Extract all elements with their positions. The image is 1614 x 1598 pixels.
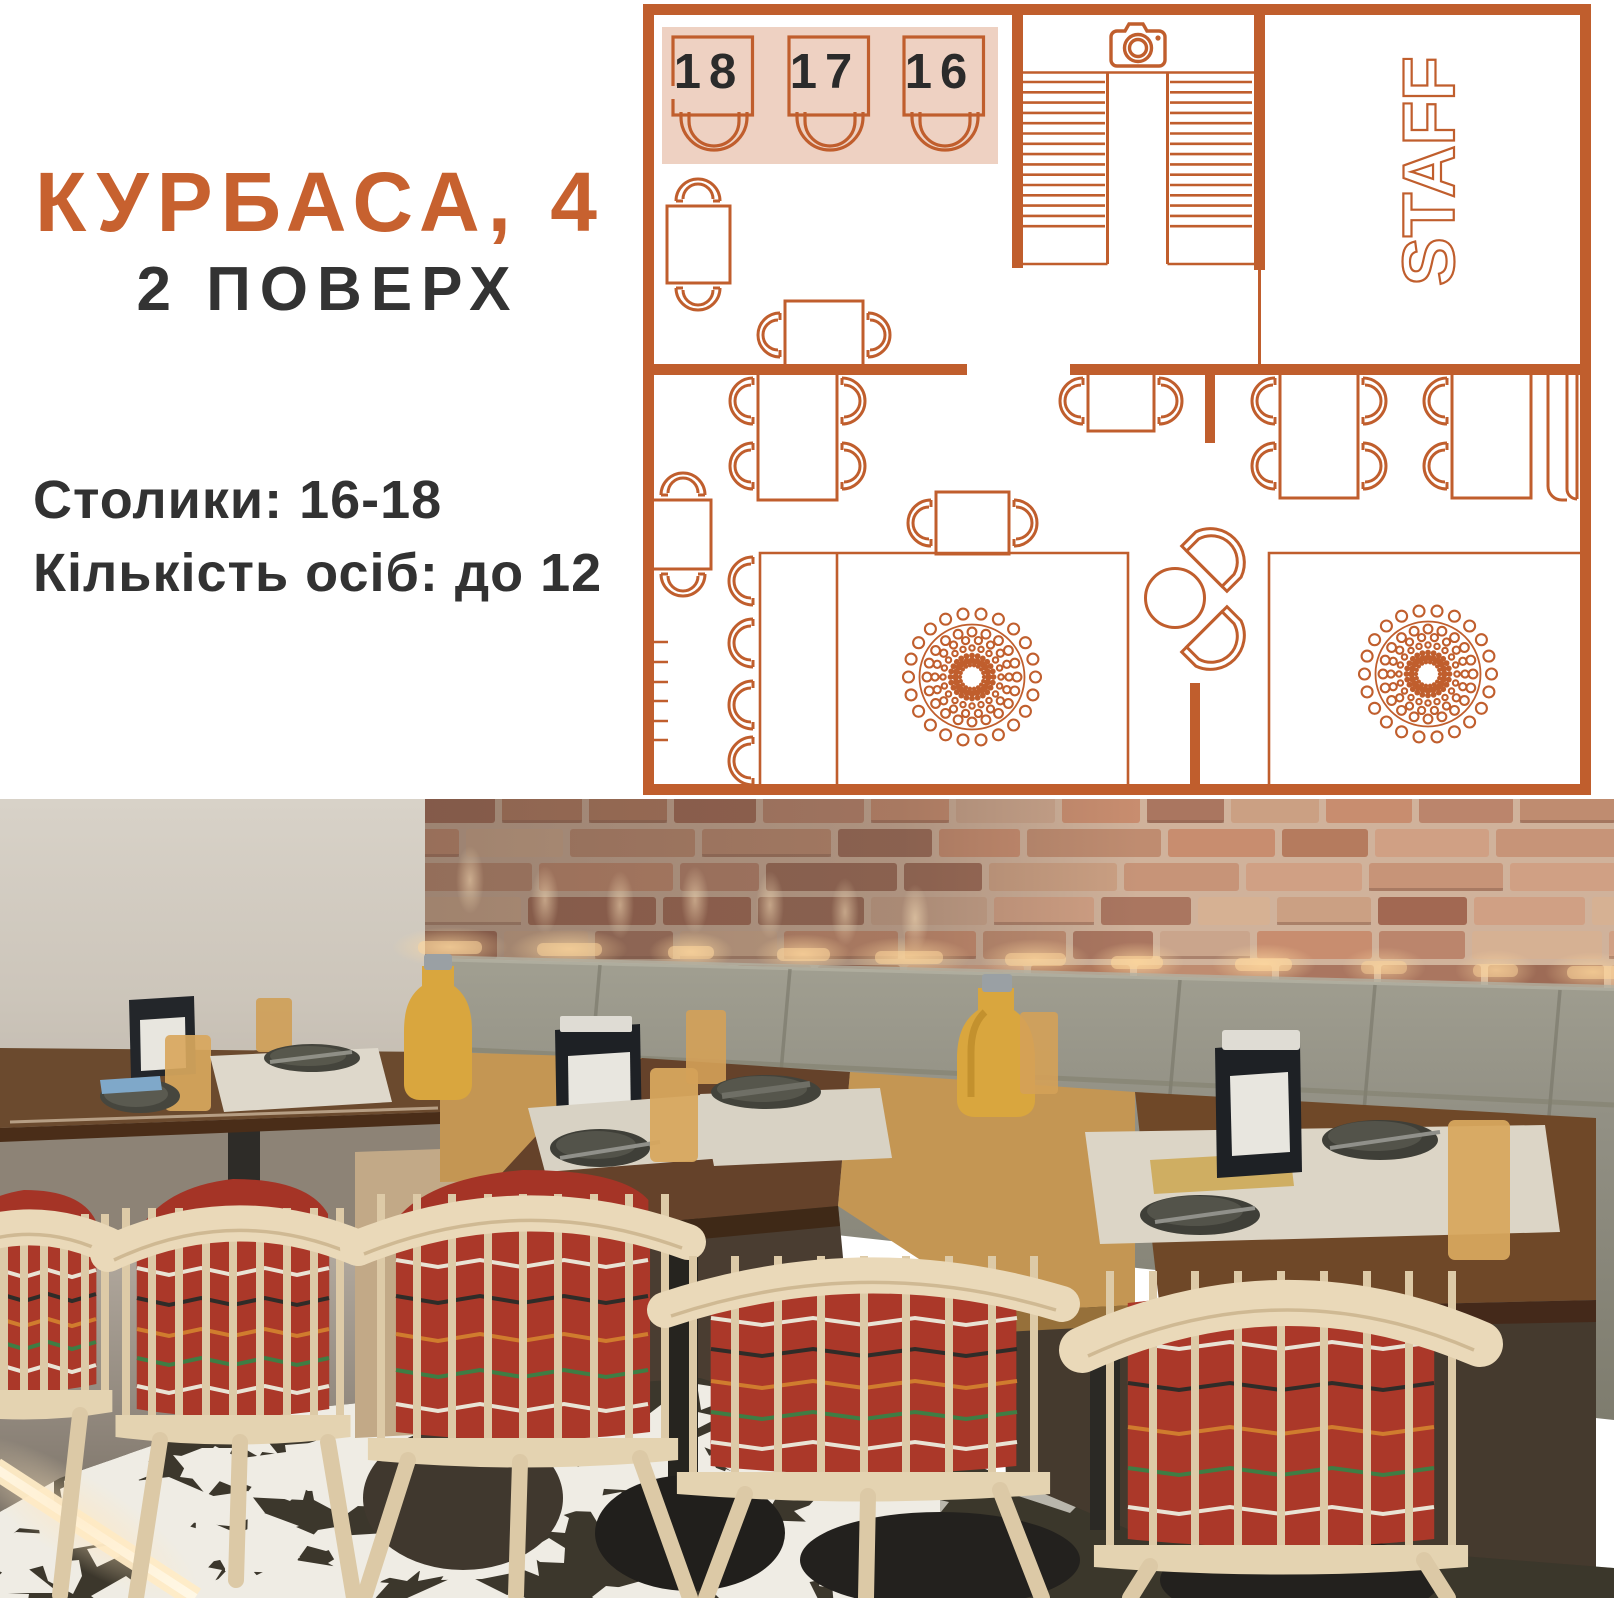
svg-text:17: 17 [790, 45, 861, 99]
svg-text:16: 16 [905, 45, 976, 99]
svg-text:STAFF: STAFF [1389, 56, 1470, 286]
svg-text:18: 18 [674, 45, 745, 99]
